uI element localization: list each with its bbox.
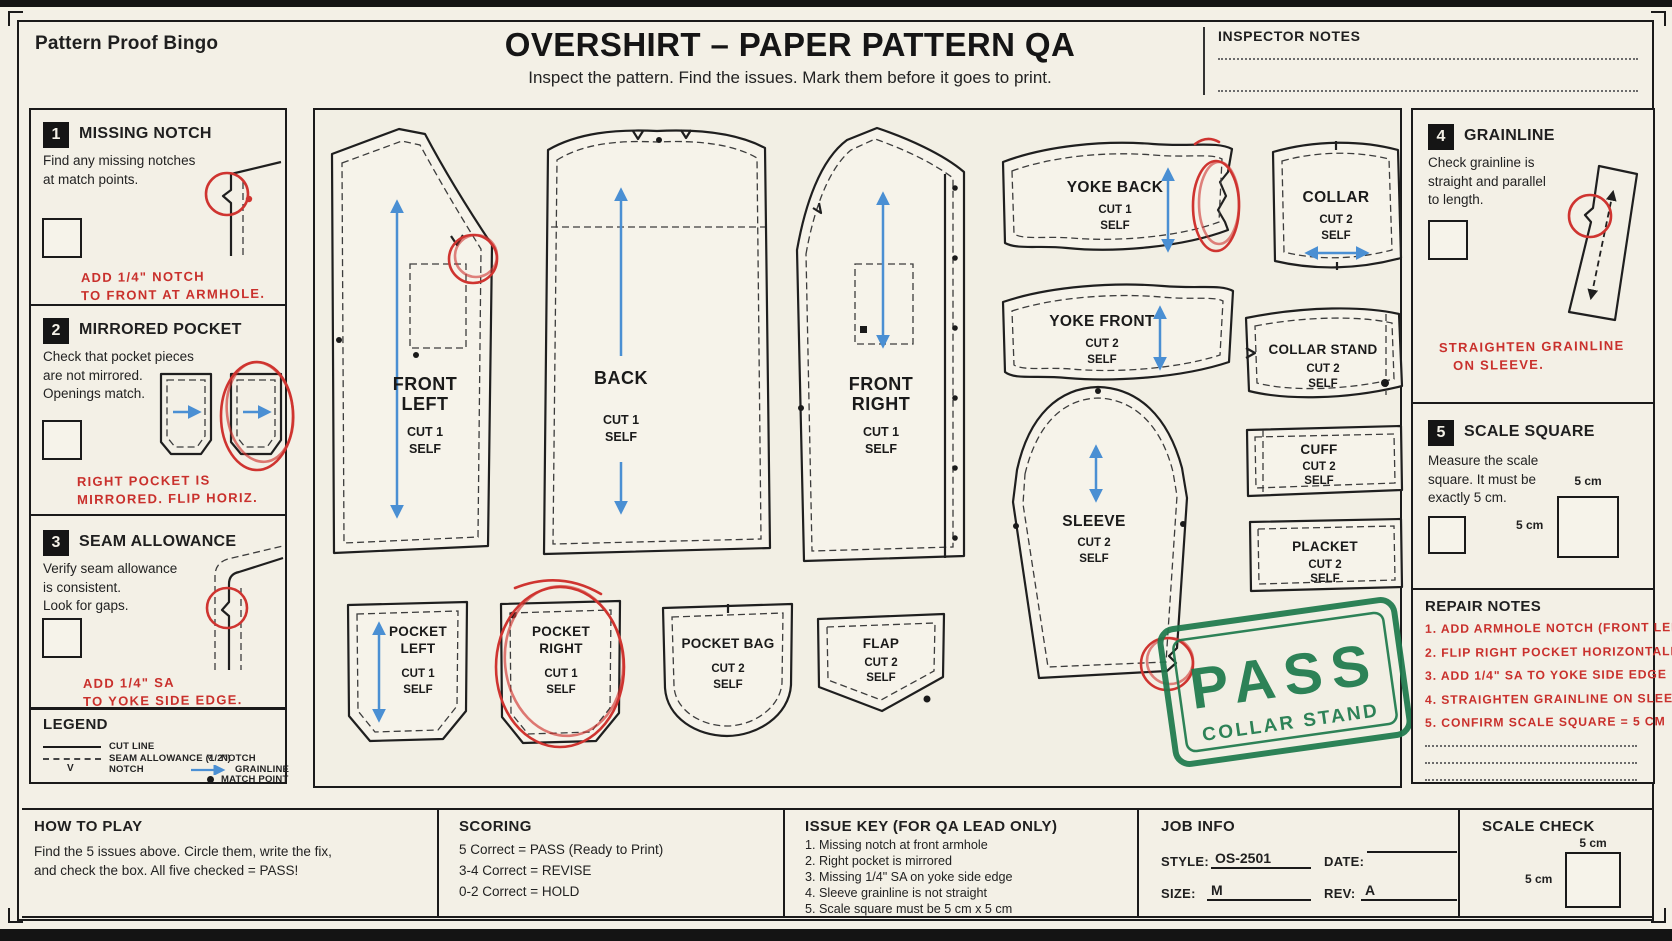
check-4-number-badge: 4: [1428, 124, 1454, 150]
piece-yoke-front[interactable]: YOKE FRONT CUT 2 SELF: [1003, 285, 1233, 380]
match-point-symbol: [207, 776, 214, 783]
issue-key-item: 1. Missing notch at front armhole: [805, 838, 988, 852]
piece-collar-stand[interactable]: COLLAR STAND CUT 2 SELF: [1246, 308, 1402, 397]
match-point-dot: [1095, 388, 1101, 394]
repair-note: 2. FLIP RIGHT POCKET HORIZONTALLY: [1425, 640, 1672, 665]
svg-text:SELF: SELF: [1321, 230, 1350, 242]
svg-text:CUT 1: CUT 1: [603, 413, 639, 427]
registration-mark: [8, 908, 23, 923]
piece-front-right[interactable]: FRONT RIGHT CUT 1 SELF: [797, 128, 964, 561]
pass-stamp: PASS COLLAR STAND: [1159, 598, 1412, 766]
column-divider: [1137, 810, 1139, 916]
piece-pocket-left[interactable]: POCKET LEFT CUT 1 SELF: [348, 602, 467, 741]
armhole-edge-line: [223, 162, 281, 256]
scale-square-diagram: [1557, 496, 1619, 558]
registration-mark: [1651, 908, 1666, 923]
svg-text:SELF: SELF: [1079, 553, 1108, 565]
svg-text:FLAP: FLAP: [863, 636, 899, 651]
scale-square-left-label: 5 cm: [1516, 518, 1543, 532]
svg-text:FRONT: FRONT: [849, 374, 914, 394]
seam-allowance-diagram: [187, 544, 285, 672]
page-title: OVERSHIRT – PAPER PATTERN QA: [420, 26, 1160, 64]
svg-text:LEFT: LEFT: [402, 394, 449, 414]
mirrored-pocket-diagram: [157, 370, 285, 474]
pattern-table: FRONT LEFT CUT 1 SELF BACK CUT 1 SELF: [313, 108, 1402, 788]
svg-text:CUT 2: CUT 2: [711, 663, 744, 675]
scoring-line: 5 Correct = PASS (Ready to Print): [459, 842, 663, 857]
svg-text:SELF: SELF: [865, 442, 897, 456]
svg-text:BACK: BACK: [594, 368, 648, 388]
scale-check-panel: SCALE CHECK 5 cm 5 cm: [1470, 810, 1652, 916]
scoring-line: 0-2 Correct = HOLD: [459, 884, 579, 899]
scoring-panel: SCORING 5 Correct = PASS (Ready to Print…: [447, 810, 783, 916]
check-4-title: GRAINLINE: [1464, 127, 1555, 145]
repair-writing-line[interactable]: [1425, 745, 1637, 747]
piece-collar[interactable]: COLLAR CUT 2 SELF: [1273, 141, 1401, 270]
svg-text:CUT 2: CUT 2: [1308, 559, 1341, 571]
svg-text:LEFT: LEFT: [401, 641, 436, 656]
check-1-missing-notch: 1 MISSING NOTCH Find any missing notches…: [31, 110, 285, 304]
piece-sleeve[interactable]: SLEEVE CUT 2 SELF: [1013, 387, 1193, 690]
check-2-checkbox[interactable]: [42, 420, 82, 460]
svg-text:YOKE FRONT: YOKE FRONT: [1049, 313, 1155, 330]
svg-text:YOKE BACK: YOKE BACK: [1067, 179, 1164, 196]
column-divider: [1458, 810, 1460, 916]
top-trim-bar: [0, 0, 1672, 7]
svg-text:FRONT: FRONT: [393, 374, 458, 394]
svg-text:SLEEVE: SLEEVE: [1062, 513, 1126, 530]
issue-key-item: 2. Right pocket is mirrored: [805, 854, 952, 868]
column-divider: [437, 810, 439, 916]
page-subtitle: Inspect the pattern. Find the issues. Ma…: [420, 68, 1160, 88]
check-3-seam-allowance: 3 SEAM ALLOWANCE Verify seam allowance i…: [31, 514, 285, 707]
check-4-grainline: 4 GRAINLINE Check grainline is straight …: [1413, 110, 1653, 402]
scoring-line: 3-4 Correct = REVISE: [459, 863, 591, 878]
piece-front-left[interactable]: FRONT LEFT CUT 1 SELF: [332, 129, 497, 553]
how-to-play-line: and check the box. All five checked = PA…: [34, 863, 298, 878]
check-3-checkbox[interactable]: [42, 618, 82, 658]
grainline-diagram: [1551, 160, 1641, 330]
rev-label: REV:: [1324, 886, 1356, 901]
svg-text:CUT 1: CUT 1: [544, 668, 578, 680]
match-point-dot: [924, 696, 931, 703]
check-4-desc: Check grainline is straight and parallel…: [1428, 154, 1546, 210]
style-field[interactable]: OS-2501: [1211, 850, 1311, 869]
svg-text:COLLAR: COLLAR: [1303, 189, 1370, 206]
svg-text:SELF: SELF: [1304, 475, 1333, 487]
rev-field[interactable]: A: [1361, 882, 1457, 901]
repair-notes-title: REPAIR NOTES: [1425, 598, 1541, 615]
red-dot: [246, 196, 252, 202]
cut-edge-line: [222, 558, 283, 670]
scoring-title: SCORING: [459, 818, 532, 835]
check-1-checkbox[interactable]: [42, 218, 82, 258]
handwritten-fix-note-2: RIGHT POCKET IS MIRRORED. FLIP HORIZ.: [77, 471, 258, 508]
date-label: DATE:: [1324, 854, 1364, 869]
check-5-scale-square: 5 SCALE SQUARE Measure the scale square.…: [1413, 402, 1653, 588]
check-4-checkbox[interactable]: [1428, 220, 1468, 260]
legend-match-point-label: MATCH POINT: [221, 774, 288, 785]
scale-check-title: SCALE CHECK: [1482, 818, 1595, 835]
pocket-right-mini: [231, 374, 281, 454]
handwritten-fix-note-3: ADD 1/4" SA TO YOKE SIDE EDGE.: [83, 673, 243, 710]
check-2-mirrored-pocket: 2 MIRRORED POCKET Check that pocket piec…: [31, 304, 285, 514]
svg-text:SELF: SELF: [605, 430, 637, 444]
pattern-pieces-canvas: FRONT LEFT CUT 1 SELF BACK CUT 1 SELF: [315, 110, 1400, 786]
piece-pocket-bag[interactable]: POCKET BAG CUT 2 SELF: [663, 604, 792, 736]
scale-check-left-label: 5 cm: [1525, 872, 1552, 886]
repair-notes-panel: REPAIR NOTES 1. ADD ARMHOLE NOTCH (FRONT…: [1413, 588, 1653, 782]
svg-text:CUT 2: CUT 2: [1085, 338, 1118, 350]
svg-text:POCKET BAG: POCKET BAG: [681, 636, 774, 651]
match-square: [860, 326, 867, 333]
sheet-brand: Pattern Proof Bingo: [35, 33, 218, 55]
notch-tick-symbol: ▿: [207, 752, 212, 763]
pattern-qa-sheet: Pattern Proof Bingo OVERSHIRT – PAPER PA…: [0, 0, 1672, 941]
svg-text:RIGHT: RIGHT: [852, 394, 911, 414]
svg-text:CUT 2: CUT 2: [1077, 537, 1110, 549]
red-circle-annotation: [207, 588, 247, 628]
match-point-dot: [1180, 521, 1186, 527]
check-5-number-badge: 5: [1428, 420, 1454, 446]
repair-writing-line[interactable]: [1425, 779, 1637, 781]
check-1-number-badge: 1: [43, 122, 69, 148]
svg-text:SELF: SELF: [1087, 354, 1116, 366]
check-1-title: MISSING NOTCH: [79, 125, 212, 143]
issue-checklist-right: 4 GRAINLINE Check grainline is straight …: [1411, 108, 1655, 784]
handwritten-fix-note-4: STRAIGHTEN GRAINLINE ON SLEEVE.: [1439, 337, 1625, 374]
cut-line-symbol: [43, 746, 101, 748]
svg-text:CUFF: CUFF: [1300, 442, 1337, 457]
inspector-notes-label: INSPECTOR NOTES: [1218, 28, 1361, 44]
match-point-dot: [413, 352, 419, 358]
svg-text:POCKET: POCKET: [532, 624, 591, 639]
size-label: SIZE:: [1161, 886, 1196, 901]
bottom-trim-bar: [0, 929, 1672, 941]
bottom-band: HOW TO PLAY Find the 5 issues above. Cir…: [22, 808, 1652, 918]
svg-text:CUT 2: CUT 2: [864, 657, 897, 669]
svg-text:SELF: SELF: [713, 679, 742, 691]
how-to-play-line: Find the 5 issues above. Circle them, wr…: [34, 844, 332, 859]
legend-notch-label: NOTCH: [109, 764, 144, 775]
red-scribble: [1195, 139, 1219, 144]
how-to-play-title: HOW TO PLAY: [34, 818, 143, 835]
legend-seam-allowance-label: SEAM ALLOWANCE (1/2"): [109, 753, 231, 764]
repair-note: 4. STRAIGHTEN GRAINLINE ON SLEEVE: [1425, 687, 1672, 712]
check-5-checkbox[interactable]: [1428, 516, 1466, 554]
how-to-play-panel: HOW TO PLAY Find the 5 issues above. Cir…: [22, 810, 437, 916]
scale-check-square: [1565, 852, 1621, 908]
svg-text:SELF: SELF: [409, 442, 441, 456]
svg-text:CUT 1: CUT 1: [401, 668, 435, 680]
svg-text:CUT 2: CUT 2: [1302, 461, 1335, 473]
svg-text:CUT 1: CUT 1: [1098, 204, 1132, 216]
legend-notch-right-label: NOTCH: [221, 753, 256, 764]
issue-key-panel: ISSUE KEY (FOR QA LEAD ONLY) 1. Missing …: [793, 810, 1137, 916]
registration-mark: [1651, 11, 1666, 26]
repair-note: 1. ADD ARMHOLE NOTCH (FRONT LEFT): [1425, 616, 1672, 641]
match-point-dot: [1013, 523, 1019, 529]
seam-allowance-symbol: [43, 758, 101, 760]
piece-pocket-right[interactable]: POCKET RIGHT CUT 1 SELF: [496, 580, 631, 747]
issue-key-item: 5. Scale square must be 5 cm x 5 cm: [805, 902, 1012, 916]
scale-check-top-label: 5 cm: [1565, 836, 1621, 850]
check-3-desc: Verify seam allowance is consistent. Loo…: [43, 560, 177, 616]
piece-placket[interactable]: PLACKET CUT 2 SELF: [1250, 519, 1402, 591]
job-info-panel: JOB INFO STYLE: OS-2501 DATE: SIZE: M RE…: [1149, 810, 1458, 916]
svg-text:SELF: SELF: [1308, 378, 1337, 390]
check-5-title: SCALE SQUARE: [1464, 423, 1595, 441]
missing-notch-diagram: [189, 144, 285, 262]
svg-text:RIGHT: RIGHT: [539, 641, 583, 656]
issue-key-item: 4. Sleeve grainline is not straight: [805, 886, 987, 900]
job-info-title: JOB INFO: [1161, 818, 1235, 835]
match-point-dot: [336, 337, 342, 343]
column-divider: [783, 810, 785, 916]
legend: LEGEND CUT LINE SEAM ALLOWANCE (1/2") V …: [31, 707, 285, 782]
svg-text:CUT 1: CUT 1: [863, 425, 899, 439]
date-field[interactable]: [1367, 850, 1457, 853]
piece-yoke-back[interactable]: YOKE BACK CUT 1 SELF: [1003, 139, 1239, 251]
issue-key-item: 3. Missing 1/4" SA on yoke side edge: [805, 870, 1013, 884]
svg-text:SELF: SELF: [1310, 573, 1339, 585]
inspector-notes-writing-line[interactable]: [1218, 90, 1638, 92]
repair-note: 3. ADD 1/4" SA TO YOKE SIDE EDGE: [1425, 663, 1672, 688]
repair-writing-line[interactable]: [1425, 762, 1637, 764]
repair-note: 5. CONFIRM SCALE SQUARE = 5 CM: [1425, 710, 1672, 735]
legend-cut-line-label: CUT LINE: [109, 741, 154, 752]
svg-text:PLACKET: PLACKET: [1292, 539, 1358, 554]
svg-text:CUT 2: CUT 2: [1319, 214, 1352, 226]
header-divider: [1203, 27, 1205, 95]
svg-text:SELF: SELF: [1100, 220, 1129, 232]
check-2-number-badge: 2: [43, 318, 69, 344]
svg-text:POCKET: POCKET: [389, 624, 448, 639]
repair-notes-list: 1. ADD ARMHOLE NOTCH (FRONT LEFT) 2. FLI…: [1425, 617, 1672, 735]
legend-title: LEGEND: [43, 716, 108, 733]
check-5-desc: Measure the scale square. It must be exa…: [1428, 452, 1538, 508]
match-point-dot: [1381, 379, 1389, 387]
svg-text:SELF: SELF: [866, 672, 895, 684]
handwritten-fix-note-1: ADD 1/4" NOTCH TO FRONT AT ARMHOLE.: [81, 267, 266, 304]
svg-text:COLLAR STAND: COLLAR STAND: [1268, 342, 1377, 357]
match-point-dot: [656, 137, 662, 143]
registration-mark: [8, 11, 23, 26]
issue-checklist-left: 1 MISSING NOTCH Find any missing notches…: [29, 108, 287, 784]
style-label: STYLE:: [1161, 854, 1209, 869]
piece-flap[interactable]: FLAP CUT 2 SELF: [818, 614, 944, 711]
scale-square-top-label: 5 cm: [1557, 474, 1619, 488]
pocket-left-mini: [161, 374, 211, 454]
size-field[interactable]: M: [1207, 882, 1311, 901]
inspector-notes-writing-line[interactable]: [1218, 58, 1638, 60]
piece-back[interactable]: BACK CUT 1 SELF: [544, 130, 770, 554]
match-point-dot: [798, 405, 804, 411]
notch-v-symbol: V: [67, 763, 74, 774]
check-2-title: MIRRORED POCKET: [79, 321, 242, 339]
check-1-desc: Find any missing notches at match points…: [43, 152, 195, 189]
svg-text:SELF: SELF: [403, 684, 432, 696]
svg-text:CUT 1: CUT 1: [407, 425, 443, 439]
issue-key-title: ISSUE KEY (FOR QA LEAD ONLY): [805, 818, 1057, 835]
piece-cuff[interactable]: CUFF CUT 2 SELF: [1247, 426, 1402, 496]
svg-text:CUT 2: CUT 2: [1306, 363, 1339, 375]
svg-text:SELF: SELF: [546, 684, 575, 696]
check-3-number-badge: 3: [43, 530, 69, 556]
